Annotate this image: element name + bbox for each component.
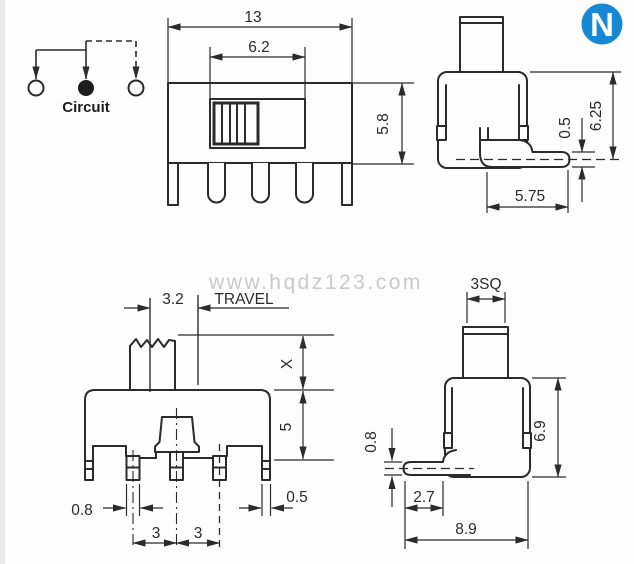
dim-text-5: 5 <box>278 423 295 432</box>
mount-leg-left <box>168 163 178 205</box>
dim-text-13: 13 <box>244 9 261 26</box>
dim-pin-width: 0.8 <box>71 484 163 519</box>
dim-text-6-9: 6.9 <box>532 420 549 442</box>
dim-text-0-8: 0.8 <box>71 502 93 519</box>
dim-text-5-8: 5.8 <box>375 113 392 135</box>
terminal-circle-common <box>79 81 94 96</box>
technical-drawing-canvas: Circuit 13 6.2 <box>0 0 634 564</box>
slider-knob-hatch <box>222 104 245 143</box>
dim-text-0-5-bottom: 0.5 <box>286 489 308 506</box>
brand-logo: N <box>582 4 623 45</box>
travel-label: TRAVEL <box>214 291 274 308</box>
circuit-legend: Circuit <box>29 41 144 116</box>
front-view-top: 13 6.2 5.8 <box>168 9 414 205</box>
terminal-pin-3 <box>296 163 313 203</box>
terminal-pin-2 <box>252 163 269 203</box>
terminal-circle-left <box>29 81 44 96</box>
dim-text-3sq: 3SQ <box>470 276 501 293</box>
dim-leg-width: 0.5 <box>239 484 308 516</box>
dim-body-height-5: 5 <box>274 391 334 460</box>
terminal-pin-1 <box>208 163 225 203</box>
dim-text-5-75: 5.75 <box>515 188 545 205</box>
drawing-sheet: Circuit 13 6.2 <box>0 0 634 564</box>
dim-pin-length: 5.75 <box>487 170 568 213</box>
dim-x-height: X <box>178 335 334 390</box>
circuit-label: Circuit <box>62 99 110 116</box>
dim-body-height: 5.8 <box>352 83 414 164</box>
dim-text-8-9: 8.9 <box>455 521 477 538</box>
actuator-break-line <box>130 339 175 347</box>
dim-actuator-square: 3SQ <box>467 276 505 323</box>
dim-height-to-pin: 6.25 <box>530 72 621 159</box>
dim-text-x: X <box>279 358 296 369</box>
switch-body-front <box>168 83 352 163</box>
dim-text-6-2: 6.2 <box>248 39 270 56</box>
bent-pin-side <box>480 140 570 167</box>
dim-travel: 3.2 TRAVEL <box>124 291 289 308</box>
body-notch-left-2 <box>444 433 452 448</box>
actuator-side <box>460 17 503 72</box>
dim-text-3-left: 3 <box>152 525 161 542</box>
dim-body-height-69: 6.9 <box>532 378 566 477</box>
dim-pin-thickness-2: 0.8 <box>363 428 402 507</box>
body-notch-left <box>437 126 446 140</box>
dim-slot-width: 6.2 <box>210 39 305 99</box>
dim-text-3-right: 3 <box>194 525 203 542</box>
body-notch-right <box>519 126 528 140</box>
dim-text-6-25: 6.25 <box>588 101 605 131</box>
mount-leg-right <box>342 163 352 205</box>
dim-text-2-7: 2.7 <box>413 489 435 506</box>
dim-text-0-5-top: 0.5 <box>557 117 574 139</box>
front-view-bottom: 3.2 TRAVEL X 5 0.8 <box>71 291 334 548</box>
dim-pin-offset: 2.7 <box>405 481 443 549</box>
side-view-bottom: 3SQ 0.8 6.9 <box>363 276 566 549</box>
dim-text-0-8-side: 0.8 <box>363 431 380 453</box>
terminal-circle-right <box>129 81 144 96</box>
side-view-top: 0.5 6.25 5.75 <box>437 17 624 213</box>
logo-letter: N <box>590 6 614 43</box>
page-left-border <box>0 0 5 564</box>
dim-text-3-2: 3.2 <box>162 291 184 308</box>
body-notch-right-2 <box>523 433 531 448</box>
